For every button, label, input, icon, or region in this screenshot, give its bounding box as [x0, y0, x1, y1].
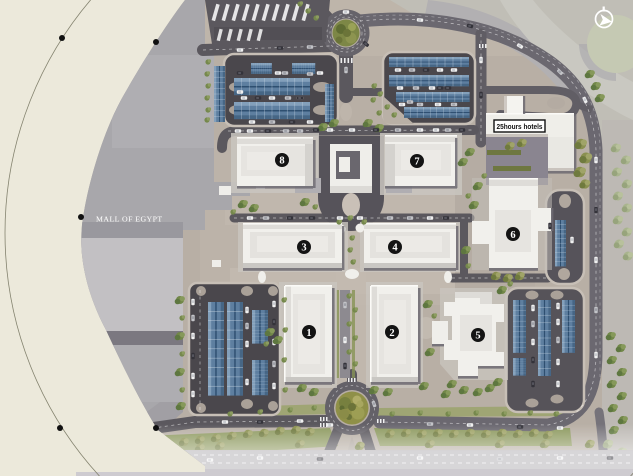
svg-text:2: 2 [389, 328, 394, 339]
svg-text:4: 4 [392, 243, 398, 254]
svg-text:MALL OF EGYPT: MALL OF EGYPT [96, 215, 163, 224]
svg-text:5: 5 [475, 331, 480, 342]
svg-text:8: 8 [279, 156, 284, 167]
svg-text:3: 3 [301, 243, 306, 254]
svg-text:7: 7 [414, 157, 419, 168]
svg-text:6: 6 [510, 230, 515, 241]
svg-text:1: 1 [306, 328, 311, 339]
svg-text:25hours hotels: 25hours hotels [497, 122, 543, 131]
